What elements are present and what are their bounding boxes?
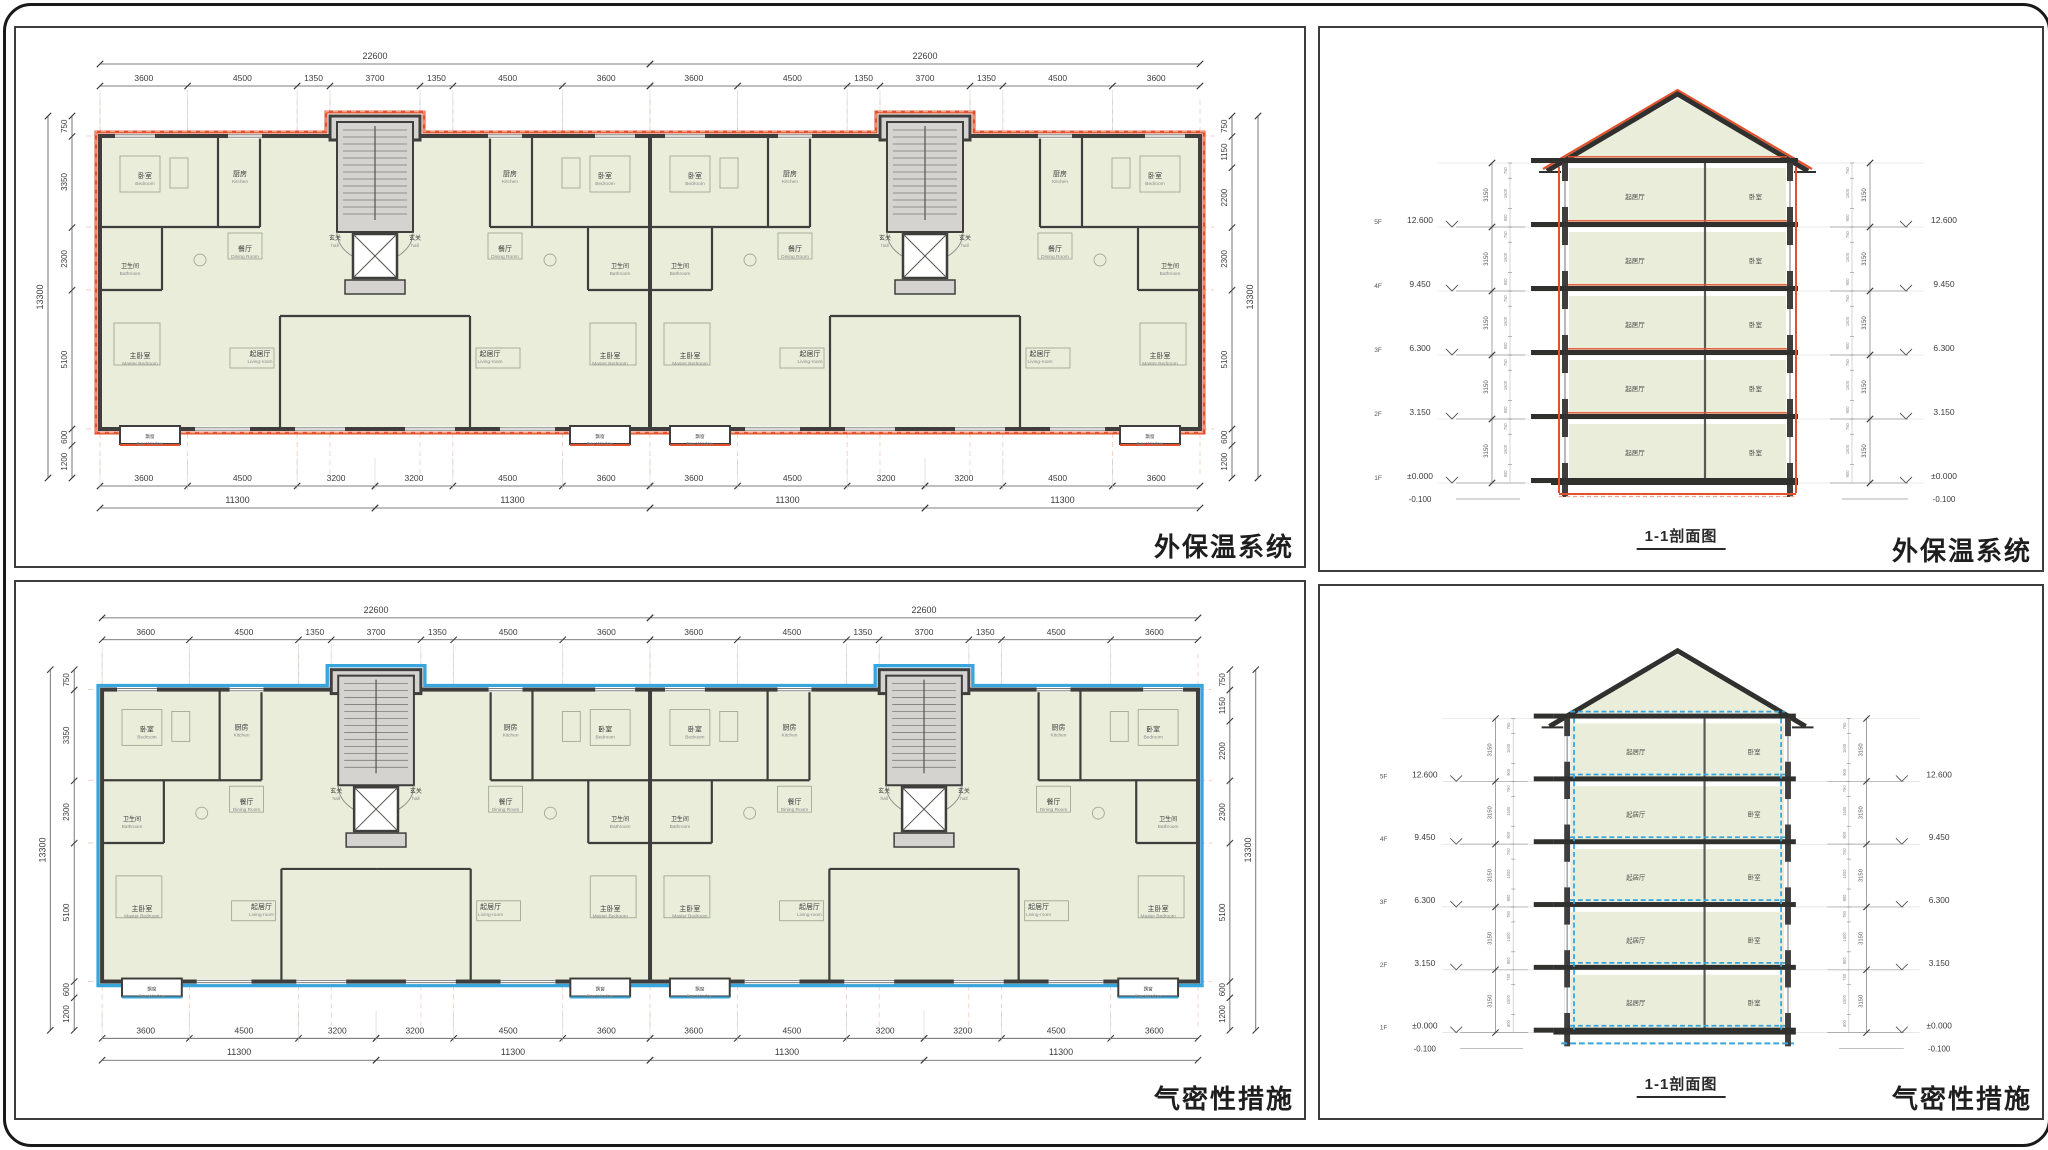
section-drawing-insulation: 起居厅卧室起居厅卧室起居厅卧室起居厅卧室起居厅卧室1F±0.000±0.0002… — [1320, 28, 2042, 570]
svg-text:1200: 1200 — [62, 1005, 71, 1023]
svg-text:4500: 4500 — [1048, 73, 1067, 83]
svg-text:750: 750 — [1503, 422, 1508, 430]
dim-vertical: 750335023005100600120013300 — [37, 666, 77, 1033]
svg-text:Living-room: Living-room — [249, 912, 274, 918]
svg-text:1350: 1350 — [304, 73, 323, 83]
svg-text:Bay Window: Bay Window — [1135, 993, 1162, 999]
svg-text:3150: 3150 — [1859, 994, 1865, 1008]
svg-text:2300: 2300 — [1218, 803, 1227, 821]
svg-text:3700: 3700 — [367, 627, 386, 637]
svg-text:厨房: 厨房 — [1053, 169, 1067, 178]
svg-text:5100: 5100 — [60, 350, 69, 368]
svg-text:卧室: 卧室 — [1749, 192, 1763, 201]
svg-text:卧室: 卧室 — [688, 171, 702, 180]
svg-text:hall: hall — [880, 796, 887, 802]
svg-text:5100: 5100 — [1218, 903, 1227, 921]
svg-text:Bedroom: Bedroom — [1143, 734, 1162, 740]
svg-text:1200: 1200 — [1220, 452, 1229, 470]
svg-text:1150: 1150 — [1218, 696, 1227, 714]
svg-text:餐厅: 餐厅 — [238, 244, 252, 253]
svg-text:3200: 3200 — [405, 1025, 424, 1035]
svg-text:1500: 1500 — [1842, 806, 1847, 816]
svg-text:玄关: 玄关 — [409, 234, 421, 242]
svg-text:3200: 3200 — [877, 473, 896, 483]
svg-text:3150: 3150 — [1859, 868, 1865, 882]
svg-text:Living-room: Living-room — [478, 912, 503, 918]
svg-text:13300: 13300 — [1243, 838, 1253, 863]
svg-text:900: 900 — [1842, 768, 1847, 776]
svg-text:Bedroom: Bedroom — [685, 181, 704, 187]
svg-text:600: 600 — [60, 430, 69, 444]
svg-text:4500: 4500 — [235, 627, 254, 637]
section-caption: 1-1剖面图 — [1637, 525, 1726, 550]
svg-text:4F: 4F — [1374, 283, 1382, 290]
svg-text:1350: 1350 — [976, 627, 995, 637]
svg-text:-0.100: -0.100 — [1414, 1044, 1437, 1053]
svg-text:1500: 1500 — [1845, 252, 1850, 262]
svg-text:Kitchen: Kitchen — [782, 179, 798, 185]
svg-text:1350: 1350 — [305, 627, 324, 637]
svg-text:900: 900 — [1845, 278, 1850, 286]
svg-text:飘窗: 飘窗 — [695, 985, 705, 992]
svg-text:750: 750 — [1506, 785, 1511, 793]
svg-text:4500: 4500 — [499, 627, 518, 637]
svg-text:2F: 2F — [1374, 411, 1382, 418]
svg-text:起居厅: 起居厅 — [1625, 321, 1645, 329]
svg-text:Bay Window: Bay Window — [137, 441, 164, 447]
svg-text:4500: 4500 — [499, 1025, 518, 1035]
floorplan-root: 2260036004500135037001350450036002260036… — [37, 605, 1259, 1064]
svg-text:主卧室: 主卧室 — [1148, 904, 1169, 913]
svg-text:750: 750 — [1218, 673, 1227, 687]
svg-text:1500: 1500 — [1845, 316, 1850, 326]
svg-text:750: 750 — [1506, 910, 1511, 918]
svg-text:900: 900 — [1503, 406, 1508, 414]
svg-text:起居厅: 起居厅 — [799, 903, 820, 911]
svg-text:3600: 3600 — [136, 1025, 155, 1035]
section-drawing-airtightness: 起居厅卧室起居厅卧室起居厅卧室起居厅卧室起居厅卧室1F±0.000±0.0002… — [1320, 586, 2042, 1118]
drawing-sheet: 2260036004500135037001350450036002260036… — [3, 3, 2048, 1147]
floorplan-drawing-airtightness: 2260036004500135037001350450036002260036… — [16, 582, 1304, 1118]
svg-text:900: 900 — [1842, 1019, 1847, 1027]
svg-text:Bedroom: Bedroom — [596, 734, 615, 740]
svg-text:Living-room: Living-room — [477, 359, 502, 365]
svg-text:750: 750 — [1842, 847, 1847, 855]
svg-text:4500: 4500 — [233, 473, 252, 483]
svg-text:hall: hall — [412, 796, 419, 802]
svg-text:Master Bedroom: Master Bedroom — [672, 914, 707, 920]
svg-text:卧室: 卧室 — [1749, 384, 1763, 393]
svg-text:12.600: 12.600 — [1926, 769, 1952, 779]
svg-text:卫生间: 卫生间 — [1161, 262, 1179, 270]
svg-text:-0.100: -0.100 — [1928, 1044, 1951, 1053]
svg-text:玄关: 玄关 — [958, 787, 970, 795]
svg-text:900: 900 — [1503, 214, 1508, 222]
svg-text:900: 900 — [1503, 470, 1508, 478]
svg-text:Dining Room: Dining Room — [781, 807, 809, 813]
svg-text:飘窗: 飘窗 — [596, 985, 606, 992]
svg-text:6.300: 6.300 — [1414, 895, 1435, 905]
dim-top: 2260036004500135037001350450036002260036… — [99, 605, 1201, 686]
svg-text:餐厅: 餐厅 — [1047, 797, 1061, 806]
svg-text:hall: hall — [961, 243, 968, 249]
svg-text:4500: 4500 — [235, 1025, 254, 1035]
svg-text:卧室: 卧室 — [598, 171, 612, 180]
svg-text:3600: 3600 — [1145, 627, 1164, 637]
svg-text:750: 750 — [1503, 294, 1508, 302]
svg-text:750: 750 — [1845, 422, 1850, 430]
svg-text:900: 900 — [1503, 278, 1508, 286]
svg-text:3600: 3600 — [597, 73, 616, 83]
svg-text:玄关: 玄关 — [878, 787, 890, 795]
svg-text:起居厅: 起居厅 — [1626, 811, 1646, 819]
svg-text:3150: 3150 — [1862, 188, 1868, 202]
svg-text:飘窗: 飘窗 — [1145, 433, 1155, 440]
svg-text:Kitchen: Kitchen — [232, 179, 248, 185]
svg-text:3150: 3150 — [1859, 743, 1865, 757]
svg-text:卧室: 卧室 — [1748, 935, 1761, 944]
svg-text:餐厅: 餐厅 — [788, 244, 802, 253]
svg-text:22600: 22600 — [912, 51, 937, 61]
svg-text:Dining Room: Dining Room — [1041, 254, 1069, 260]
svg-text:飘窗: 飘窗 — [145, 433, 155, 440]
svg-text:9.450: 9.450 — [1414, 832, 1435, 842]
svg-text:3200: 3200 — [327, 473, 346, 483]
svg-text:Kitchen: Kitchen — [503, 732, 519, 738]
svg-text:玄关: 玄关 — [330, 787, 342, 795]
svg-text:主卧室: 主卧室 — [680, 351, 701, 360]
svg-text:3150: 3150 — [1488, 868, 1494, 882]
svg-text:3150: 3150 — [1484, 188, 1490, 202]
svg-text:Bedroom: Bedroom — [1145, 181, 1164, 187]
svg-text:主卧室: 主卧室 — [679, 904, 700, 913]
svg-text:1F: 1F — [1380, 1025, 1388, 1032]
panel-floorplan-insulation: 2260036004500135037001350450036002260036… — [14, 26, 1306, 568]
svg-text:3150: 3150 — [1488, 805, 1494, 819]
svg-text:1500: 1500 — [1845, 380, 1850, 390]
svg-text:750: 750 — [1845, 294, 1850, 302]
svg-text:900: 900 — [1842, 957, 1847, 965]
svg-text:卧室: 卧室 — [1749, 320, 1763, 329]
svg-text:4500: 4500 — [783, 73, 802, 83]
svg-text:12.600: 12.600 — [1931, 215, 1957, 225]
svg-text:900: 900 — [1845, 214, 1850, 222]
svg-text:餐厅: 餐厅 — [788, 797, 802, 806]
svg-text:Bathroom: Bathroom — [1158, 824, 1179, 830]
svg-text:22600: 22600 — [362, 51, 387, 61]
svg-text:卧室: 卧室 — [140, 724, 154, 733]
svg-text:Master Bedroom: Master Bedroom — [1142, 361, 1177, 367]
svg-text:750: 750 — [1220, 119, 1229, 133]
svg-text:起居厅: 起居厅 — [250, 350, 271, 358]
svg-text:飘窗: 飘窗 — [1144, 985, 1154, 992]
svg-text:1350: 1350 — [977, 73, 996, 83]
svg-text:1500: 1500 — [1503, 444, 1508, 454]
svg-text:3200: 3200 — [328, 1025, 347, 1035]
svg-text:750: 750 — [1503, 358, 1508, 366]
svg-text:Bedroom: Bedroom — [685, 734, 704, 740]
svg-text:3200: 3200 — [954, 473, 973, 483]
svg-text:3150: 3150 — [1862, 444, 1868, 458]
svg-text:卧室: 卧室 — [1748, 998, 1761, 1007]
svg-text:1500: 1500 — [1503, 380, 1508, 390]
svg-text:卫生间: 卫生间 — [1159, 815, 1177, 823]
svg-text:起居厅: 起居厅 — [1625, 385, 1645, 393]
svg-text:750: 750 — [1503, 230, 1508, 238]
svg-text:13300: 13300 — [35, 284, 45, 309]
svg-text:厨房: 厨房 — [504, 722, 518, 731]
svg-text:玄关: 玄关 — [410, 787, 422, 795]
svg-text:1500: 1500 — [1845, 444, 1850, 454]
svg-text:起居厅: 起居厅 — [1626, 936, 1646, 944]
svg-text:9.450: 9.450 — [1409, 279, 1431, 289]
svg-text:3600: 3600 — [684, 627, 703, 637]
svg-text:起居厅: 起居厅 — [800, 350, 821, 358]
svg-text:750: 750 — [62, 673, 71, 687]
svg-text:Living-room: Living-room — [1027, 359, 1052, 365]
svg-text:卫生间: 卫生间 — [671, 815, 689, 823]
svg-text:1500: 1500 — [1842, 743, 1847, 753]
svg-text:3600: 3600 — [1147, 473, 1166, 483]
panel-section-airtightness: 起居厅卧室起居厅卧室起居厅卧室起居厅卧室起居厅卧室1F±0.000±0.0002… — [1318, 584, 2044, 1120]
svg-text:750: 750 — [1845, 166, 1850, 174]
svg-text:9.450: 9.450 — [1933, 279, 1955, 289]
svg-text:厨房: 厨房 — [783, 169, 797, 178]
svg-text:2300: 2300 — [60, 249, 69, 267]
svg-text:Kitchen: Kitchen — [1052, 179, 1068, 185]
svg-text:Bay Window: Bay Window — [587, 993, 614, 999]
svg-text:5100: 5100 — [1220, 350, 1229, 368]
svg-text:卧室: 卧室 — [1748, 872, 1761, 881]
svg-text:600: 600 — [1220, 430, 1229, 444]
svg-text:3200: 3200 — [404, 473, 423, 483]
svg-text:3F: 3F — [1374, 347, 1382, 354]
svg-text:600: 600 — [1218, 982, 1227, 996]
svg-text:900: 900 — [1842, 894, 1847, 902]
panel-label-airtightness: 气密性措施 — [1154, 1079, 1294, 1116]
panel-label-insulation: 外保温系统 — [1154, 527, 1294, 564]
svg-text:Bedroom: Bedroom — [135, 181, 154, 187]
svg-text:600: 600 — [62, 982, 71, 996]
svg-text:4500: 4500 — [498, 73, 517, 83]
svg-text:13300: 13300 — [1245, 284, 1255, 309]
svg-text:Master Bedroom: Master Bedroom — [1141, 914, 1176, 920]
svg-text:4500: 4500 — [782, 1025, 801, 1035]
svg-text:3150: 3150 — [1859, 931, 1865, 945]
svg-text:餐厅: 餐厅 — [499, 797, 513, 806]
svg-text:900: 900 — [1506, 1019, 1511, 1027]
svg-text:5F: 5F — [1380, 773, 1388, 780]
svg-text:Bathroom: Bathroom — [670, 824, 691, 830]
panel-floorplan-airtightness: 2260036004500135037001350450036002260036… — [14, 580, 1306, 1120]
svg-text:Living-room: Living-room — [797, 359, 822, 365]
svg-text:1200: 1200 — [60, 452, 69, 470]
svg-text:起居厅: 起居厅 — [1626, 873, 1646, 881]
svg-text:1500: 1500 — [1842, 869, 1847, 879]
svg-text:±0.000: ±0.000 — [1407, 471, 1433, 481]
svg-text:起居厅: 起居厅 — [1625, 193, 1645, 201]
svg-text:3150: 3150 — [1488, 931, 1494, 945]
svg-text:4500: 4500 — [1048, 473, 1067, 483]
svg-text:Bathroom: Bathroom — [610, 271, 631, 277]
svg-text:起居厅: 起居厅 — [1625, 257, 1645, 265]
svg-text:3.150: 3.150 — [1409, 407, 1431, 417]
svg-text:13300: 13300 — [37, 838, 47, 863]
svg-text:厨房: 厨房 — [783, 722, 797, 731]
svg-text:2300: 2300 — [62, 803, 71, 821]
svg-text:厨房: 厨房 — [233, 169, 247, 178]
svg-text:3200: 3200 — [876, 1025, 895, 1035]
svg-text:Bay Window: Bay Window — [139, 993, 166, 999]
svg-text:3150: 3150 — [1488, 743, 1494, 757]
svg-text:1500: 1500 — [1506, 932, 1511, 942]
floorplan-root: 2260036004500135037001350450036002260036… — [35, 51, 1261, 511]
panel-section-insulation: 起居厅卧室起居厅卧室起居厅卧室起居厅卧室起居厅卧室1F±0.000±0.0002… — [1318, 26, 2044, 572]
svg-text:1500: 1500 — [1506, 994, 1511, 1004]
svg-text:卧室: 卧室 — [1146, 724, 1160, 733]
svg-text:900: 900 — [1845, 406, 1850, 414]
svg-text:3600: 3600 — [136, 627, 155, 637]
svg-text:22600: 22600 — [912, 605, 937, 615]
svg-text:3600: 3600 — [597, 473, 616, 483]
svg-text:起居厅: 起居厅 — [1625, 449, 1645, 457]
svg-text:2200: 2200 — [1220, 188, 1229, 206]
svg-text:4F: 4F — [1380, 836, 1388, 843]
svg-text:3150: 3150 — [1484, 316, 1490, 330]
svg-text:玄关: 玄关 — [959, 234, 971, 242]
svg-text:卧室: 卧室 — [1148, 171, 1162, 180]
svg-text:3700: 3700 — [915, 627, 934, 637]
svg-text:Kitchen: Kitchen — [502, 179, 518, 185]
svg-text:1350: 1350 — [427, 73, 446, 83]
svg-text:卫生间: 卫生间 — [611, 815, 629, 823]
svg-text:900: 900 — [1506, 957, 1511, 965]
svg-text:3200: 3200 — [953, 1025, 972, 1035]
svg-text:Kitchen: Kitchen — [1051, 732, 1067, 738]
svg-text:3350: 3350 — [62, 726, 71, 744]
svg-text:1500: 1500 — [1506, 806, 1511, 816]
svg-text:卫生间: 卫生间 — [121, 262, 139, 270]
svg-text:750: 750 — [1845, 230, 1850, 238]
svg-text:hall: hall — [331, 243, 338, 249]
svg-text:卧室: 卧室 — [1749, 448, 1763, 457]
svg-text:1500: 1500 — [1842, 932, 1847, 942]
svg-text:3600: 3600 — [684, 73, 703, 83]
svg-text:Master Bedroom: Master Bedroom — [122, 361, 157, 367]
svg-text:4500: 4500 — [1047, 1025, 1066, 1035]
svg-text:1500: 1500 — [1503, 188, 1508, 198]
svg-text:Bathroom: Bathroom — [122, 824, 143, 830]
svg-text:玄关: 玄关 — [879, 234, 891, 242]
svg-text:飘窗: 飘窗 — [695, 433, 705, 440]
building-plan: 卧室Bedroom厨房Kitchen卫生间Bathroom餐厅Dining Ro… — [98, 666, 1202, 1000]
svg-text:3600: 3600 — [597, 1025, 616, 1035]
svg-text:3.150: 3.150 — [1933, 407, 1955, 417]
svg-text:9.450: 9.450 — [1929, 832, 1950, 842]
svg-text:Living-room: Living-room — [797, 912, 822, 918]
svg-text:卫生间: 卫生间 — [611, 262, 629, 270]
svg-text:Dining Room: Dining Room — [231, 254, 259, 260]
svg-text:750: 750 — [60, 119, 69, 133]
svg-text:11300: 11300 — [1049, 1047, 1073, 1057]
svg-text:3600: 3600 — [134, 473, 153, 483]
svg-text:3150: 3150 — [1484, 444, 1490, 458]
svg-text:Bathroom: Bathroom — [670, 271, 691, 277]
svg-text:3150: 3150 — [1862, 252, 1868, 266]
svg-text:Bathroom: Bathroom — [120, 271, 141, 277]
svg-text:3150: 3150 — [1484, 380, 1490, 394]
svg-text:11300: 11300 — [500, 495, 524, 505]
svg-text:起居厅: 起居厅 — [1626, 999, 1646, 1007]
svg-text:起居厅: 起居厅 — [480, 903, 501, 911]
panel-label-airtightness: 气密性措施 — [1892, 1079, 2032, 1116]
svg-text:3150: 3150 — [1862, 380, 1868, 394]
svg-text:750: 750 — [1842, 722, 1847, 730]
svg-text:3150: 3150 — [1862, 316, 1868, 330]
dim-vertical: 7501150220023005100600120013300 — [1220, 113, 1261, 481]
svg-text:1200: 1200 — [1218, 1005, 1227, 1023]
svg-text:750: 750 — [1506, 847, 1511, 855]
svg-text:±0.000: ±0.000 — [1926, 1021, 1952, 1031]
svg-text:厨房: 厨房 — [503, 169, 517, 178]
floorplan-drawing-insulation: 2260036004500135037001350450036002260036… — [16, 28, 1304, 566]
svg-text:Bay Window: Bay Window — [687, 993, 714, 999]
svg-text:主卧室: 主卧室 — [131, 904, 152, 913]
svg-text:hall: hall — [960, 796, 967, 802]
svg-text:5F: 5F — [1374, 219, 1382, 226]
dim-bottom: 3600450032001130032004500360011300360045… — [97, 458, 1203, 511]
svg-text:4500: 4500 — [783, 473, 802, 483]
svg-text:3150: 3150 — [1484, 252, 1490, 266]
svg-text:主卧室: 主卧室 — [600, 351, 621, 360]
svg-text:750: 750 — [1506, 973, 1511, 981]
svg-text:卧室: 卧室 — [598, 724, 612, 733]
dim-top: 2260036004500135037001350450036002260036… — [97, 51, 1203, 132]
svg-text:900: 900 — [1506, 894, 1511, 902]
svg-text:Dining Room: Dining Room — [781, 254, 809, 260]
svg-text:卧室: 卧室 — [1749, 256, 1763, 265]
svg-text:Living-room: Living-room — [1026, 912, 1051, 918]
svg-text:Bathroom: Bathroom — [610, 824, 631, 830]
svg-text:750: 750 — [1842, 973, 1847, 981]
svg-text:3.150: 3.150 — [1929, 958, 1950, 968]
svg-text:Dining Room: Dining Room — [233, 807, 261, 813]
svg-text:3600: 3600 — [1145, 1025, 1164, 1035]
svg-text:卧室: 卧室 — [1748, 810, 1761, 819]
svg-text:3150: 3150 — [1488, 994, 1494, 1008]
svg-text:900: 900 — [1845, 470, 1850, 478]
svg-text:卫生间: 卫生间 — [671, 262, 689, 270]
svg-text:2300: 2300 — [1220, 249, 1229, 267]
section-caption: 1-1剖面图 — [1637, 1073, 1726, 1098]
svg-text:750: 750 — [1506, 722, 1511, 730]
svg-text:Master Bedroom: Master Bedroom — [592, 361, 627, 367]
dim-vertical: 7501150220023005100600120013300 — [1218, 666, 1259, 1033]
svg-text:11300: 11300 — [775, 1047, 799, 1057]
svg-text:飘窗: 飘窗 — [595, 433, 605, 440]
svg-text:3600: 3600 — [684, 1025, 703, 1035]
svg-text:6.300: 6.300 — [1933, 343, 1955, 353]
svg-text:1500: 1500 — [1503, 316, 1508, 326]
svg-text:3F: 3F — [1380, 899, 1388, 906]
svg-text:-0.100: -0.100 — [1409, 495, 1432, 504]
svg-text:3150: 3150 — [1859, 805, 1865, 819]
svg-text:玄关: 玄关 — [329, 234, 341, 242]
svg-text:4500: 4500 — [498, 473, 517, 483]
svg-text:1500: 1500 — [1503, 252, 1508, 262]
svg-text:Bay Window: Bay Window — [587, 441, 614, 447]
svg-text:±0.000: ±0.000 — [1931, 471, 1957, 481]
